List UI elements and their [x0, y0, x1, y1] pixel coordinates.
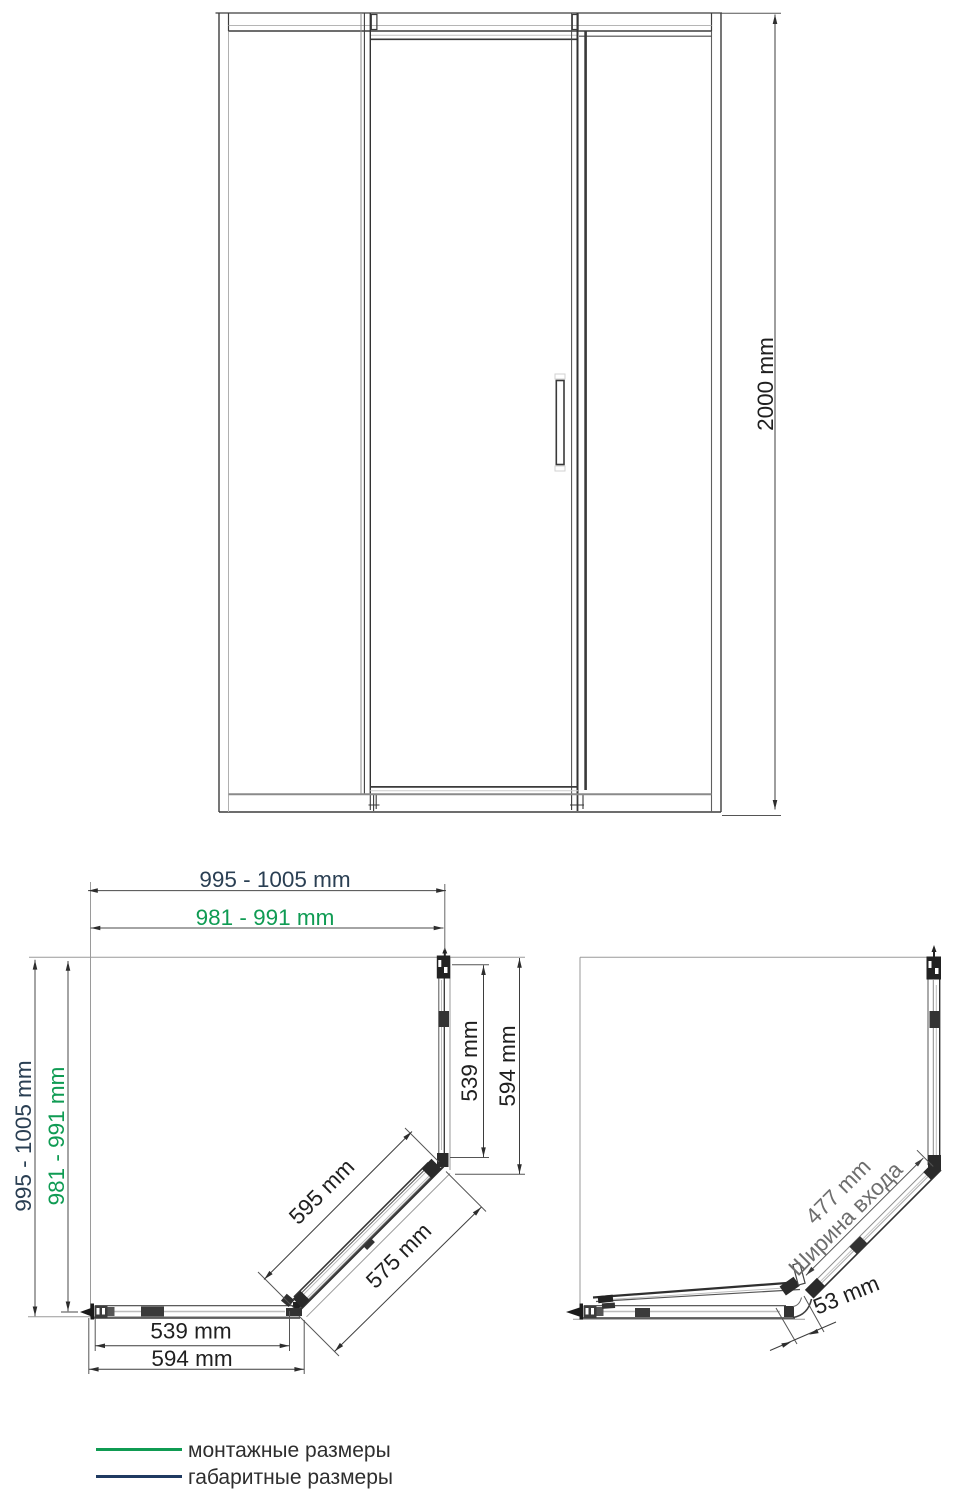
svg-text:53 mm: 53 mm	[810, 1271, 883, 1320]
svg-text:595 mm: 595 mm	[284, 1154, 359, 1229]
svg-text:539 mm: 539 mm	[150, 1319, 231, 1344]
svg-text:995 - 1005 mm: 995 - 1005 mm	[11, 1060, 36, 1211]
svg-text:монтажные размеры: монтажные размеры	[188, 1439, 391, 1462]
svg-text:539 mm: 539 mm	[457, 1020, 482, 1101]
svg-text:995 - 1005 mm: 995 - 1005 mm	[199, 867, 350, 892]
svg-text:575 mm: 575 mm	[361, 1218, 436, 1293]
svg-text:594 mm: 594 mm	[151, 1346, 232, 1371]
svg-text:габаритные размеры: габаритные размеры	[188, 1466, 393, 1489]
svg-text:2000 mm: 2000 mm	[753, 337, 778, 431]
svg-text:981 - 991 mm: 981 - 991 mm	[44, 1067, 69, 1206]
svg-text:981 - 991 mm: 981 - 991 mm	[196, 905, 335, 930]
svg-text:594 mm: 594 mm	[495, 1025, 520, 1106]
